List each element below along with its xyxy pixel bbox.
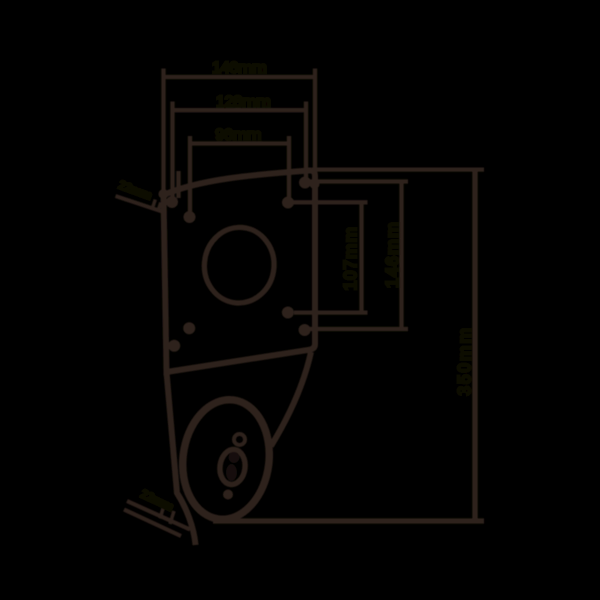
svg-text:146mm: 146mm xyxy=(383,221,403,288)
svg-text:146mm: 146mm xyxy=(212,58,267,77)
svg-text:128mm: 128mm xyxy=(216,92,271,111)
svg-text:107mm: 107mm xyxy=(341,226,361,291)
svg-text:350mm: 350mm xyxy=(455,326,475,396)
svg-text:96mm: 96mm xyxy=(215,125,262,144)
